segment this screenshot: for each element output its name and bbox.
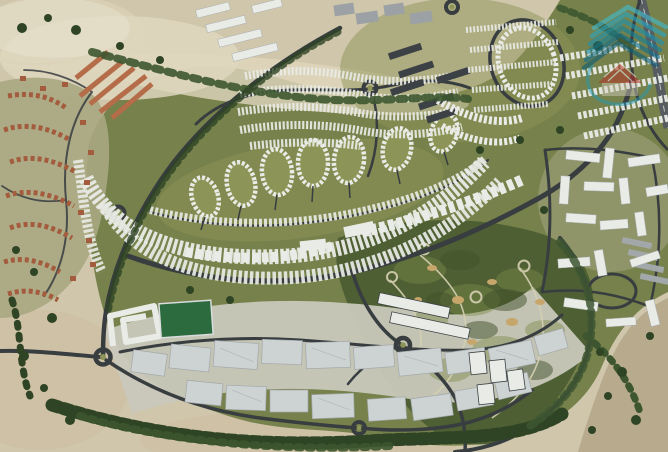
tree bbox=[596, 348, 604, 356]
warehouse bbox=[262, 339, 303, 364]
warehouse bbox=[353, 345, 394, 370]
tree bbox=[17, 23, 27, 33]
teardrop-cluster bbox=[298, 140, 328, 186]
tree bbox=[156, 56, 164, 64]
courtyard-block bbox=[559, 176, 570, 205]
tree bbox=[44, 14, 52, 22]
roundabout-island bbox=[400, 342, 406, 348]
villa-roof bbox=[84, 180, 90, 185]
house-body bbox=[602, 81, 638, 96]
tree bbox=[556, 126, 564, 134]
tree bbox=[116, 42, 124, 50]
tree bbox=[566, 26, 574, 34]
warehouse bbox=[270, 390, 308, 412]
midrise-block bbox=[507, 369, 526, 391]
villa-roof bbox=[20, 76, 26, 81]
villa-roof bbox=[86, 238, 92, 243]
tree bbox=[186, 286, 194, 294]
aerial-masterplan-screenshot bbox=[0, 0, 668, 452]
warehouse bbox=[312, 393, 355, 418]
villa-roof bbox=[70, 276, 76, 281]
courtyard-block bbox=[584, 181, 614, 191]
tree bbox=[40, 384, 48, 392]
tree bbox=[19, 351, 29, 361]
tree bbox=[588, 426, 596, 434]
midrise-block bbox=[477, 383, 495, 405]
tree bbox=[540, 206, 548, 214]
villa-roof bbox=[80, 120, 86, 125]
tree bbox=[646, 332, 654, 340]
roundabout bbox=[396, 338, 410, 352]
sports-field bbox=[159, 300, 213, 338]
warehouse bbox=[213, 340, 259, 369]
villa-roof bbox=[62, 82, 68, 87]
roundabout-island bbox=[357, 426, 362, 431]
roundabout-island bbox=[450, 5, 455, 10]
warehouse bbox=[367, 397, 406, 422]
warehouse bbox=[169, 344, 211, 372]
warehouse bbox=[306, 341, 351, 369]
roundabout-island bbox=[100, 354, 106, 360]
roundabout bbox=[353, 422, 365, 434]
tree bbox=[604, 392, 612, 400]
warehouse bbox=[397, 348, 443, 376]
midrise-block bbox=[469, 351, 487, 375]
midrise-block bbox=[489, 359, 507, 383]
courtyard-block bbox=[600, 219, 629, 230]
tree bbox=[47, 313, 57, 323]
courtyard-block bbox=[566, 213, 597, 224]
tree bbox=[30, 268, 38, 276]
roundabout bbox=[96, 350, 111, 365]
pitch bbox=[159, 300, 213, 338]
terrain bbox=[0, 0, 668, 452]
tree bbox=[71, 25, 81, 35]
villa-roof bbox=[78, 210, 84, 215]
masterplan-canvas bbox=[0, 0, 668, 452]
roundabout bbox=[446, 1, 458, 13]
warehouse bbox=[185, 380, 223, 406]
tree bbox=[516, 136, 524, 144]
villa-roof bbox=[90, 262, 96, 267]
tree bbox=[12, 246, 20, 254]
warehouse bbox=[131, 350, 168, 377]
roundabout-island bbox=[367, 85, 372, 90]
tree bbox=[226, 296, 234, 304]
warehouse bbox=[226, 385, 267, 410]
tree bbox=[617, 367, 627, 377]
tree bbox=[476, 146, 484, 154]
villa-roof bbox=[40, 86, 46, 91]
tree bbox=[65, 415, 75, 425]
villa-roof bbox=[88, 150, 94, 155]
tree bbox=[631, 415, 641, 425]
